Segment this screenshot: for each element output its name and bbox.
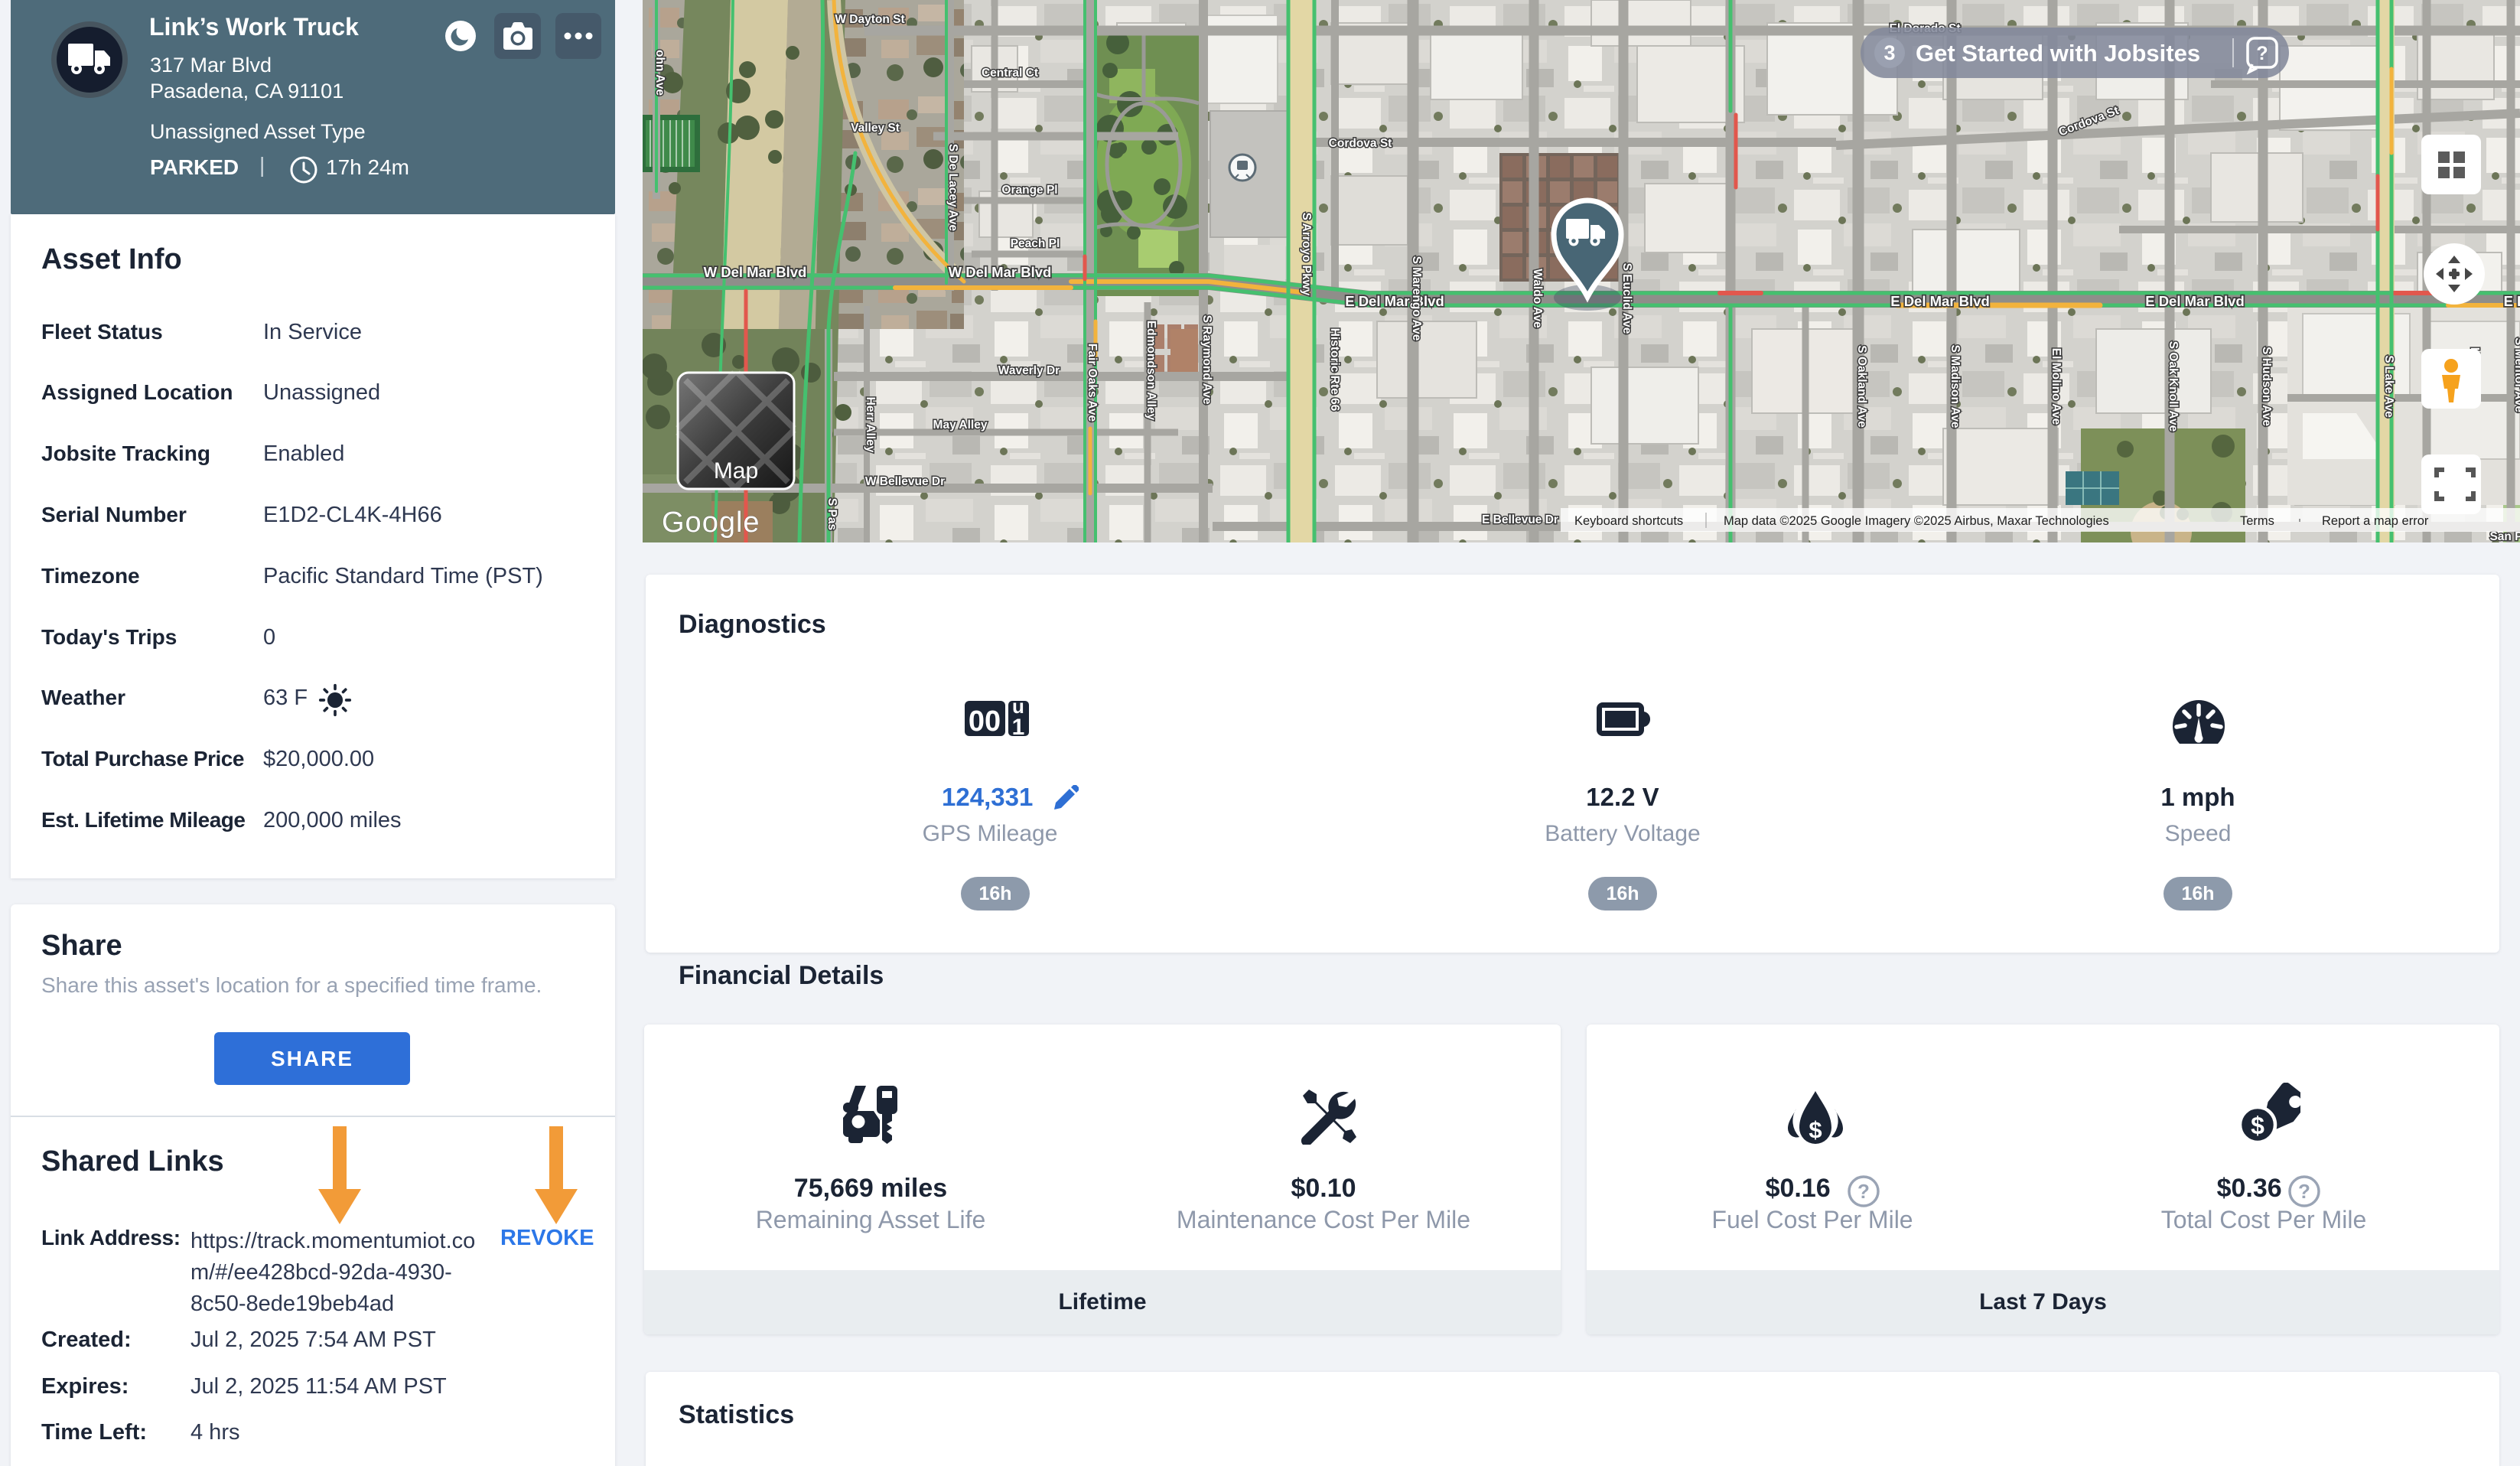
svg-text:Valley St: Valley St (851, 122, 900, 135)
svg-text:May Alley: May Alley (933, 419, 988, 432)
svg-text:Edmondson Alley: Edmondson Alley (1144, 321, 1157, 421)
svg-text:ohn Ave: ohn Ave (653, 50, 666, 96)
svg-text:E D: E D (2504, 293, 2520, 309)
svg-text:1: 1 (1012, 715, 1025, 738)
svg-text:S Marengo Ave: S Marengo Ave (1410, 256, 1423, 341)
svg-text:$: $ (1809, 1116, 1822, 1143)
svg-text:E Del Mar Blvd: E Del Mar Blvd (1890, 293, 1990, 309)
svg-text:E Del Mar Blvd: E Del Mar Blvd (1345, 293, 1444, 309)
svg-text:?: ? (1857, 1180, 1870, 1203)
svg-text:E Del Mar Blvd: E Del Mar Blvd (2145, 293, 2245, 309)
svg-text:San P: San P (2489, 530, 2520, 542)
svg-text:Get Started with Jobsites: Get Started with Jobsites (1916, 40, 2200, 67)
svg-text:S Mentor Ave: S Mentor Ave (2512, 337, 2520, 412)
svg-text:S Euclid Ave: S Euclid Ave (1620, 263, 1633, 334)
svg-text:3: 3 (1883, 41, 1895, 64)
svg-text:$: $ (2251, 1112, 2264, 1139)
svg-text:W Dayton St: W Dayton St (835, 13, 904, 26)
svg-text:S De Lacey Ave: S De Lacey Ave (946, 144, 959, 232)
svg-text:Map data ©2025 Google Imagery: Map data ©2025 Google Imagery ©2025 Airb… (1724, 514, 2109, 528)
svg-text:Report a map error: Report a map error (2322, 514, 2429, 528)
svg-text:S Oakland Ave: S Oakland Ave (1855, 345, 1868, 428)
svg-text:Central Ct: Central Ct (982, 67, 1038, 80)
svg-text:S Lake Ave: S Lake Ave (2382, 355, 2395, 418)
svg-text:W Del Mar Blvd: W Del Mar Blvd (704, 264, 807, 280)
svg-text:Historic Rte 66: Historic Rte 66 (1328, 328, 1341, 412)
svg-text:Fair Oaks Ave: Fair Oaks Ave (1086, 344, 1099, 422)
svg-text:S Arroyo Pkwy: S Arroyo Pkwy (1300, 213, 1313, 296)
svg-text:Peach Pl: Peach Pl (1011, 237, 1060, 250)
svg-text:S Oak Knoll Ave: S Oak Knoll Ave (2167, 341, 2180, 432)
svg-text:?: ? (2298, 1180, 2310, 1203)
svg-text:S Madison Ave: S Madison Ave (1949, 344, 1962, 428)
svg-text:Cordova St: Cordova St (1329, 137, 1392, 150)
svg-text:E Bellevue Dr: E Bellevue Dr (1482, 513, 1558, 526)
svg-text:Herr Alley: Herr Alley (864, 397, 877, 453)
svg-text:?: ? (2256, 43, 2268, 64)
svg-text:S Raymond Ave: S Raymond Ave (1200, 315, 1213, 405)
svg-text:Waldo Ave: Waldo Ave (1531, 269, 1544, 328)
svg-text:S Hudson Ave: S Hudson Ave (2260, 347, 2273, 426)
svg-text:Map: Map (714, 458, 758, 484)
svg-text:00: 00 (969, 705, 1001, 738)
svg-text:El Molino Ave: El Molino Ave (2050, 348, 2063, 425)
svg-text:Waverly Dr: Waverly Dr (998, 364, 1060, 377)
svg-text:Terms: Terms (2240, 514, 2274, 528)
svg-text:Google: Google (662, 507, 760, 539)
svg-text:W Bellevue Dr: W Bellevue Dr (865, 475, 945, 488)
svg-text:Orange Pl: Orange Pl (1001, 184, 1057, 197)
svg-text:S Pas: S Pas (825, 498, 838, 530)
svg-text:W Del Mar Blvd: W Del Mar Blvd (949, 264, 1052, 280)
svg-text:Keyboard shortcuts: Keyboard shortcuts (1574, 514, 1683, 528)
